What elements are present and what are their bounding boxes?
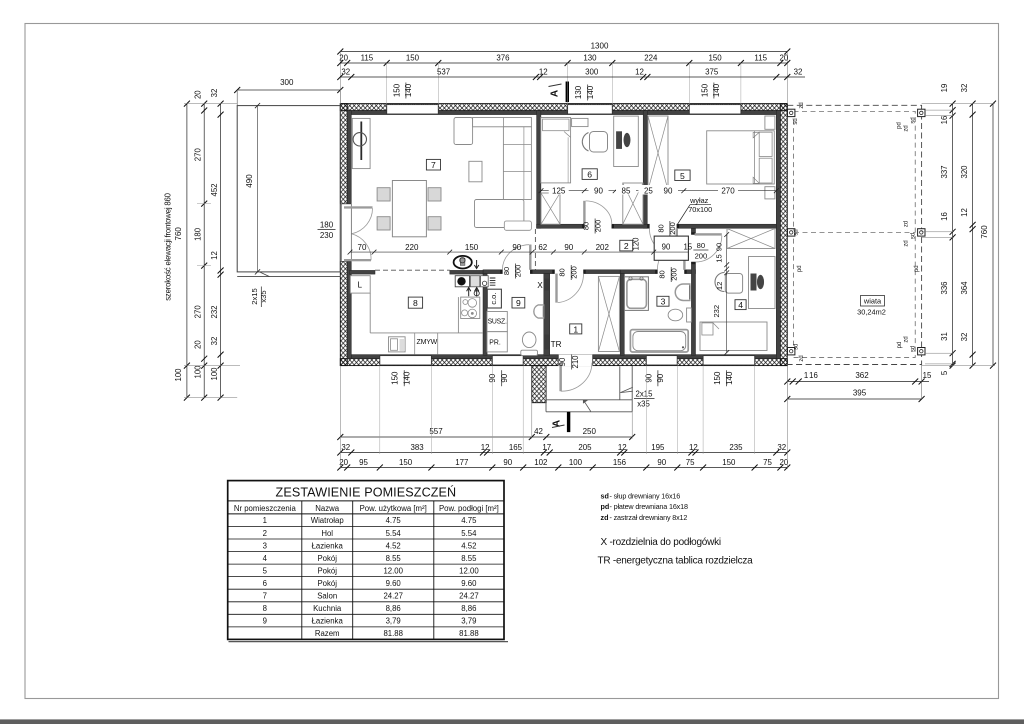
svg-text:Łazienka: Łazienka (312, 541, 344, 550)
svg-text:4.75: 4.75 (386, 516, 402, 525)
svg-text:383: 383 (411, 443, 425, 452)
svg-text:12: 12 (539, 67, 548, 76)
svg-text:90: 90 (644, 373, 653, 382)
svg-text:1: 1 (573, 324, 578, 334)
svg-text:c.o.: c.o. (489, 293, 498, 305)
svg-text:376: 376 (496, 53, 510, 62)
svg-text:1300: 1300 (591, 42, 609, 51)
svg-text:5.54: 5.54 (461, 529, 477, 538)
svg-text:9.60: 9.60 (386, 579, 402, 588)
svg-text:A: A (550, 90, 561, 97)
svg-text:100: 100 (174, 368, 183, 382)
svg-text:395: 395 (853, 389, 867, 398)
svg-text:zd: zd (799, 102, 805, 108)
svg-text:180: 180 (320, 221, 334, 230)
svg-text:90: 90 (558, 357, 567, 366)
svg-text:70x100: 70x100 (688, 205, 712, 214)
svg-text:zd: zd (904, 336, 910, 342)
svg-text:42: 42 (534, 427, 543, 436)
svg-text:3,79: 3,79 (461, 617, 476, 626)
svg-text:Pokój: Pokój (317, 566, 337, 575)
svg-text:Pow. użytkowa [m²]: Pow. użytkowa [m²] (360, 504, 427, 513)
svg-text:2x15: 2x15 (250, 288, 259, 304)
svg-text:150: 150 (709, 53, 723, 62)
svg-text:9: 9 (263, 617, 267, 626)
svg-text:150: 150 (391, 371, 400, 385)
svg-text:120: 120 (631, 237, 640, 251)
svg-text:75: 75 (763, 458, 772, 467)
svg-text:200: 200 (570, 266, 579, 279)
svg-text:15: 15 (923, 371, 932, 380)
svg-text:Kuchnia: Kuchnia (313, 604, 342, 613)
svg-text:7: 7 (263, 592, 267, 601)
svg-text:5: 5 (680, 171, 685, 181)
svg-text:220: 220 (405, 243, 419, 252)
svg-text:sd: sd (911, 233, 917, 239)
svg-text:200: 200 (514, 265, 523, 278)
svg-text:ZMYW: ZMYW (417, 339, 438, 346)
svg-text:zd: zd (904, 221, 910, 227)
svg-text:ZESTAWIENIE POMIESZCZEŃ: ZESTAWIENIE POMIESZCZEŃ (276, 485, 457, 500)
svg-text:140: 140 (712, 83, 721, 97)
svg-text:4: 4 (263, 554, 268, 563)
svg-text:100: 100 (569, 458, 583, 467)
svg-text:7: 7 (431, 160, 436, 170)
svg-text:L: L (358, 280, 363, 289)
svg-text:16: 16 (809, 371, 818, 380)
svg-text:32: 32 (794, 68, 803, 77)
svg-text:pd: pd (897, 342, 903, 349)
svg-text:90: 90 (564, 243, 573, 252)
svg-text:90: 90 (512, 243, 521, 252)
svg-text:490: 490 (245, 174, 254, 188)
svg-text:5: 5 (940, 370, 949, 375)
svg-text:760: 760 (980, 225, 989, 239)
svg-text:8,86: 8,86 (461, 604, 476, 613)
svg-text:4: 4 (738, 300, 743, 310)
svg-text:90: 90 (503, 458, 512, 467)
svg-text:9.60: 9.60 (461, 579, 477, 588)
svg-text:pd: pd (797, 265, 803, 272)
svg-text:375: 375 (705, 67, 719, 76)
svg-text:20: 20 (339, 458, 348, 467)
svg-text:75: 75 (686, 458, 695, 467)
svg-text:2: 2 (624, 241, 629, 251)
svg-text:300: 300 (280, 78, 294, 87)
svg-text:6: 6 (263, 579, 267, 588)
svg-text:80: 80 (656, 224, 665, 232)
svg-text:90: 90 (656, 373, 665, 382)
svg-text:pd: pd (601, 502, 610, 511)
svg-text:32: 32 (210, 89, 219, 98)
svg-text:8.55: 8.55 (386, 554, 402, 563)
svg-text:Pow. podłogi [m²]: Pow. podłogi [m²] (439, 504, 499, 513)
svg-text:85: 85 (622, 187, 631, 196)
svg-text:Łazienka: Łazienka (312, 617, 344, 626)
svg-text:140: 140 (586, 85, 595, 99)
svg-text:12: 12 (210, 251, 219, 260)
svg-text:24.27: 24.27 (383, 592, 403, 601)
svg-text:8: 8 (263, 604, 267, 613)
svg-text:24.27: 24.27 (459, 592, 479, 601)
svg-text:32: 32 (210, 337, 219, 346)
svg-text:80: 80 (502, 267, 511, 275)
svg-text:31: 31 (940, 332, 949, 341)
svg-text:8,86: 8,86 (386, 604, 401, 613)
svg-text:8.55: 8.55 (461, 554, 477, 563)
svg-text:115: 115 (754, 53, 767, 62)
svg-text:12: 12 (960, 208, 969, 217)
svg-text:210: 210 (571, 355, 580, 369)
svg-text:90: 90 (715, 243, 724, 251)
svg-text:12: 12 (618, 443, 627, 452)
svg-text:177: 177 (455, 458, 468, 467)
svg-text:TR -energetyczna tablica rozdz: TR -energetyczna tablica rozdzielcza (598, 556, 754, 567)
svg-text:270: 270 (194, 148, 203, 162)
svg-text:x35: x35 (637, 400, 650, 409)
svg-text:sd: sd (601, 491, 609, 500)
svg-text:270: 270 (721, 187, 735, 196)
svg-text:pd: pd (897, 122, 903, 129)
svg-text:X -rozdzielnia do podłogówki: X -rozdzielnia do podłogówki (601, 537, 721, 548)
svg-text:32: 32 (960, 84, 969, 93)
svg-text:140: 140 (725, 371, 734, 385)
svg-text:320: 320 (960, 165, 969, 179)
svg-text:15: 15 (715, 254, 724, 262)
svg-text:4.52: 4.52 (461, 541, 476, 550)
svg-text:156: 156 (613, 458, 627, 467)
svg-text:760: 760 (174, 227, 183, 241)
svg-text:20: 20 (780, 53, 789, 62)
svg-text:32: 32 (777, 443, 786, 452)
svg-text:150: 150 (700, 83, 709, 97)
svg-text:12: 12 (689, 443, 698, 452)
svg-text:150: 150 (713, 371, 722, 385)
svg-text:12.00: 12.00 (383, 566, 403, 575)
svg-text:- zastrzał drewniany 8x12: - zastrzał drewniany 8x12 (610, 513, 688, 522)
svg-text:90: 90 (664, 187, 673, 196)
svg-text:200: 200 (668, 222, 677, 235)
svg-text:80: 80 (697, 241, 705, 250)
svg-text:180: 180 (194, 227, 203, 241)
svg-text:81.88: 81.88 (459, 629, 479, 638)
svg-text:sd: sd (793, 118, 799, 124)
svg-text:zd: zd (601, 513, 609, 522)
svg-text:X: X (537, 281, 543, 290)
svg-text:20: 20 (194, 90, 203, 99)
svg-text:25: 25 (644, 187, 653, 196)
svg-text:9: 9 (516, 298, 521, 308)
svg-text:90: 90 (662, 242, 671, 251)
svg-text:150: 150 (465, 243, 479, 252)
svg-text:3: 3 (263, 541, 267, 550)
svg-text:Salon: Salon (317, 592, 337, 601)
svg-text:62: 62 (538, 243, 547, 252)
svg-text:17: 17 (542, 443, 551, 452)
svg-text:200: 200 (670, 268, 679, 281)
svg-text:TR: TR (551, 340, 562, 349)
svg-text:3,79: 3,79 (386, 617, 401, 626)
svg-text:1: 1 (804, 371, 808, 380)
svg-text:sd: sd (911, 346, 917, 352)
svg-text:130: 130 (574, 85, 583, 99)
svg-text:130: 130 (583, 53, 597, 62)
svg-text:Pokój: Pokój (317, 554, 337, 563)
svg-text:12.00: 12.00 (459, 566, 479, 575)
svg-text:Hol: Hol (321, 529, 333, 538)
svg-text:80: 80 (582, 222, 591, 230)
svg-text:537: 537 (437, 67, 450, 76)
svg-text:- słup drewniany 16x16: - słup drewniany 16x16 (610, 491, 681, 500)
svg-text:16: 16 (940, 212, 949, 221)
svg-text:150: 150 (722, 458, 736, 467)
svg-text:362: 362 (855, 371, 869, 380)
svg-text:81.88: 81.88 (383, 629, 403, 638)
svg-text:80: 80 (558, 268, 567, 276)
svg-text:300: 300 (585, 67, 599, 76)
svg-text:x35: x35 (259, 290, 268, 302)
svg-text:SUSZ.: SUSZ. (488, 319, 507, 326)
svg-text:80: 80 (658, 270, 667, 278)
svg-text:195: 195 (651, 443, 665, 452)
svg-text:20: 20 (339, 53, 348, 62)
svg-text:6: 6 (587, 170, 592, 180)
svg-text:32: 32 (341, 67, 350, 76)
svg-text:70: 70 (358, 243, 367, 252)
svg-text:19: 19 (940, 84, 949, 93)
svg-text:12: 12 (715, 282, 724, 290)
svg-text:2x15: 2x15 (636, 390, 654, 399)
svg-text:Nazwa: Nazwa (315, 504, 339, 513)
svg-text:230: 230 (320, 231, 334, 240)
svg-text:8: 8 (413, 298, 418, 308)
svg-text:202: 202 (596, 243, 610, 252)
svg-text:95: 95 (359, 458, 368, 467)
svg-text:pd: pd (914, 265, 920, 272)
svg-text:150: 150 (406, 53, 420, 62)
svg-text:Wiatrołap: Wiatrołap (311, 516, 345, 525)
svg-text:125: 125 (552, 187, 566, 196)
svg-text:20: 20 (194, 340, 203, 349)
svg-text:wyłaz: wyłaz (689, 196, 709, 205)
svg-text:165: 165 (509, 443, 523, 452)
svg-text:2: 2 (263, 529, 267, 538)
svg-text:12: 12 (635, 67, 644, 76)
svg-text:100: 100 (210, 367, 219, 381)
svg-text:205: 205 (578, 443, 592, 452)
svg-text:5: 5 (263, 566, 268, 575)
svg-text:235: 235 (729, 443, 743, 452)
svg-text:zd: zd (799, 355, 805, 361)
svg-text:102: 102 (534, 458, 547, 467)
svg-text:15: 15 (683, 242, 692, 251)
svg-text:336: 336 (940, 281, 949, 294)
svg-text:sd: sd (794, 344, 800, 350)
svg-text:Pokój: Pokój (317, 579, 337, 588)
svg-text:90: 90 (657, 458, 666, 467)
svg-text:5.54: 5.54 (386, 529, 402, 538)
svg-text:4.75: 4.75 (461, 516, 477, 525)
svg-text:32: 32 (960, 333, 969, 342)
svg-text:1: 1 (263, 516, 267, 525)
svg-text:szerokość elewacji frontowej 8: szerokość elewacji frontowej 860 (164, 192, 173, 300)
svg-text:32: 32 (341, 443, 350, 452)
svg-text:4.52: 4.52 (386, 541, 401, 550)
svg-text:12: 12 (481, 443, 490, 452)
svg-text:16: 16 (940, 116, 949, 125)
svg-text:232: 232 (210, 305, 219, 318)
svg-text:Razem: Razem (315, 629, 340, 638)
svg-text:150: 150 (399, 458, 413, 467)
svg-text:100: 100 (194, 365, 203, 379)
svg-text:337: 337 (940, 165, 949, 178)
svg-text:Nr pomieszczenia: Nr pomieszczenia (234, 504, 297, 513)
svg-text:- płatew drewniana 16x18: - płatew drewniana 16x18 (610, 502, 688, 511)
svg-text:3: 3 (661, 297, 666, 307)
svg-text:452: 452 (210, 183, 219, 196)
svg-text:150: 150 (392, 83, 401, 97)
svg-text:zd: zd (904, 240, 910, 246)
svg-text:115: 115 (361, 53, 374, 62)
svg-text:270: 270 (194, 305, 203, 319)
svg-text:200: 200 (695, 251, 708, 260)
svg-text:250: 250 (583, 427, 597, 436)
svg-text:PR.: PR. (489, 339, 501, 346)
svg-text:90: 90 (488, 373, 497, 382)
svg-text:364: 364 (960, 281, 969, 295)
svg-text:90: 90 (594, 187, 603, 196)
svg-text:224: 224 (644, 53, 658, 62)
svg-text:232: 232 (712, 305, 721, 318)
svg-text:zd: zd (904, 125, 910, 131)
svg-text:sd: sd (911, 117, 917, 123)
svg-text:30,24m2: 30,24m2 (857, 307, 886, 316)
svg-text:wiata: wiata (863, 297, 882, 306)
